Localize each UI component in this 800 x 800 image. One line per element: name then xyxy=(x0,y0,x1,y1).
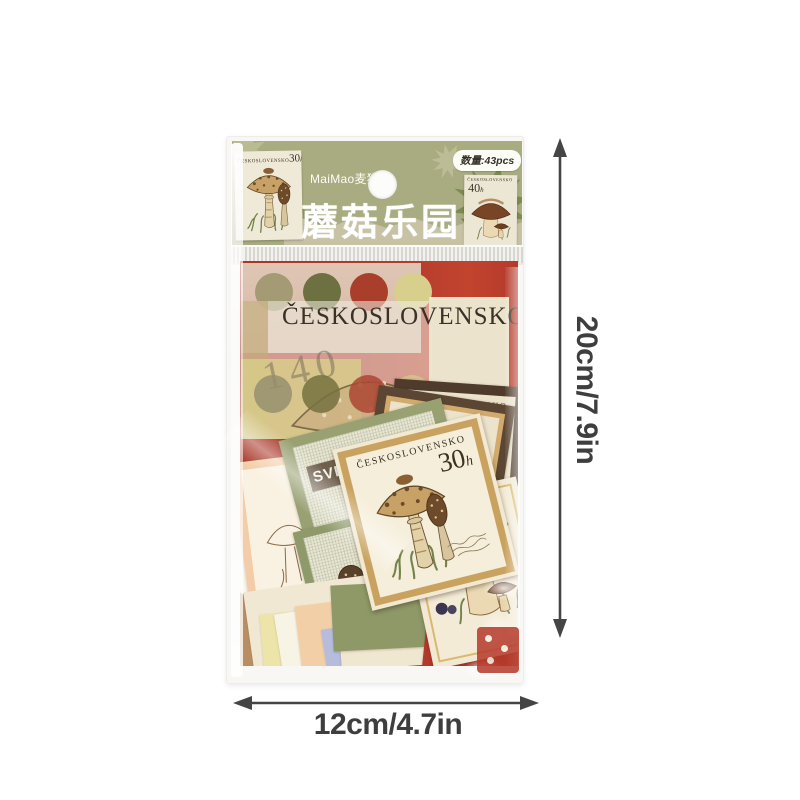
package-header-card: ČESKOSLOVENSKO 30h MaiMao麦猫® 蘑菇乐园 数量:43p… xyxy=(232,141,522,245)
quantity-badge: 数量:43pcs xyxy=(453,150,521,171)
header-stamp-right: ČESKOSLOVENSKO 40h xyxy=(464,175,518,245)
product-title: 蘑菇乐园 xyxy=(292,192,470,245)
plastic-gloss xyxy=(231,143,243,677)
red-sheet-peek xyxy=(477,627,519,673)
width-dimension-label: 12cm/4.7in xyxy=(314,708,462,742)
product-photo-scene: ČESKOSLOVENSKO 30h MaiMao麦猫® 蘑菇乐园 数量:43p… xyxy=(0,0,800,800)
dot-sticker xyxy=(302,375,340,413)
porcini-mushroom-icon xyxy=(467,191,515,243)
dot-sticker xyxy=(254,375,292,413)
sticker-pack-bag: ČESKOSLOVENSKO 30h MaiMao麦猫® 蘑菇乐园 数量:43p… xyxy=(226,136,524,684)
height-dimension-label: 20cm/7.9in xyxy=(569,316,603,464)
plastic-crumple xyxy=(459,565,523,681)
vellum-country-text: ČESKOSLOVENSKO xyxy=(282,303,512,331)
parasol-mushroom-icon xyxy=(238,162,299,237)
